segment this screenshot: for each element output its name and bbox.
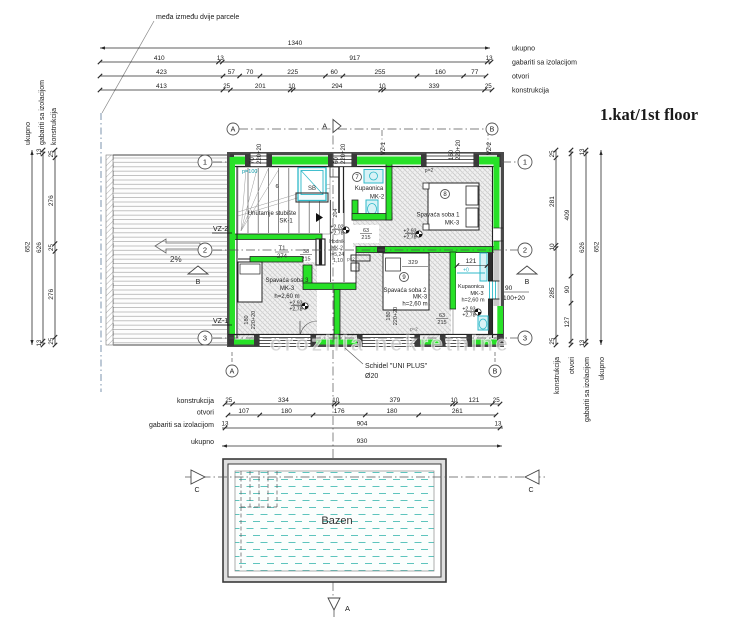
svg-text:274: 274 — [277, 254, 288, 260]
svg-text:215: 215 — [361, 235, 370, 241]
svg-text:90: 90 — [505, 285, 513, 292]
svg-text:930: 930 — [357, 438, 368, 445]
svg-text:13: 13 — [36, 339, 43, 346]
svg-text:konstrukcija: konstrukcija — [51, 108, 58, 145]
svg-text:63: 63 — [439, 313, 445, 319]
svg-text:gabariti sa izolacijom: gabariti sa izolacijom — [512, 60, 577, 67]
svg-text:77: 77 — [471, 69, 479, 76]
svg-text:25: 25 — [223, 83, 230, 90]
svg-text:409: 409 — [564, 209, 571, 220]
svg-text:652: 652 — [25, 241, 32, 252]
svg-text:10: 10 — [549, 243, 556, 250]
svg-text:ukupno: ukupno — [191, 439, 214, 446]
svg-text:3: 3 — [203, 334, 207, 343]
svg-text:gabariti sa izolacijom: gabariti sa izolacijom — [149, 422, 214, 429]
svg-text:127: 127 — [564, 316, 571, 327]
svg-text:13: 13 — [579, 339, 586, 346]
svg-text:konstrukcija: konstrukcija — [554, 357, 561, 394]
svg-text:70: 70 — [246, 69, 254, 76]
svg-text:crozilla nekretnine: crozilla nekretnine — [270, 331, 511, 356]
svg-text:334: 334 — [278, 397, 289, 404]
svg-text:p=100: p=100 — [242, 169, 257, 175]
svg-text:+2,78: +2,78 — [403, 235, 416, 241]
svg-text:6: 6 — [275, 184, 278, 190]
svg-text:107: 107 — [238, 408, 249, 415]
svg-text:Schidel "UNI PLUS": Schidel "UNI PLUS" — [365, 363, 428, 370]
svg-text:60: 60 — [331, 69, 339, 76]
svg-text:13: 13 — [222, 421, 229, 428]
svg-text:otvori: otvori — [569, 357, 576, 375]
svg-text:A: A — [230, 369, 235, 376]
svg-text:2%: 2% — [170, 255, 182, 264]
svg-text:+2,78: +2,78 — [289, 307, 302, 313]
svg-text:VZ-2: VZ-2 — [213, 226, 228, 233]
svg-text:10: 10 — [379, 83, 386, 90]
svg-text:Ø20: Ø20 — [365, 373, 378, 380]
svg-text:MK-3: MK-3 — [470, 291, 483, 297]
svg-text:+0: +0 — [463, 268, 469, 274]
svg-text:C: C — [528, 487, 533, 494]
svg-text:B: B — [490, 127, 495, 134]
svg-text:25: 25 — [48, 150, 55, 157]
svg-text:MK-2: MK-2 — [331, 246, 343, 252]
svg-text:100+20: 100+20 — [503, 295, 525, 302]
svg-text:180: 180 — [281, 408, 292, 415]
svg-text:MK-3: MK-3 — [413, 295, 428, 301]
svg-text:1: 1 — [523, 158, 527, 167]
svg-text:SK-1: SK-1 — [279, 219, 293, 225]
svg-text:10: 10 — [288, 83, 295, 90]
svg-text:25: 25 — [549, 337, 556, 344]
svg-text:90: 90 — [564, 286, 571, 294]
svg-text:13: 13 — [495, 421, 502, 428]
svg-text:+2,78: +2,78 — [462, 313, 475, 319]
svg-text:p=2: p=2 — [347, 257, 355, 262]
svg-text:Kupaonica: Kupaonica — [458, 284, 485, 290]
svg-text:Kupaonica: Kupaonica — [355, 186, 384, 192]
svg-text:Spavaća soba 3: Spavaća soba 3 — [265, 278, 309, 284]
svg-text:25: 25 — [485, 83, 492, 90]
svg-text:gabariti sa izolacijom: gabariti sa izolacijom — [39, 80, 46, 145]
svg-text:160: 160 — [449, 149, 455, 160]
svg-text:A: A — [345, 604, 350, 613]
svg-text:C: C — [194, 487, 199, 494]
svg-text:13: 13 — [36, 148, 43, 155]
svg-text:180: 180 — [244, 315, 250, 324]
svg-text:25: 25 — [225, 397, 232, 404]
svg-text:215: 215 — [301, 257, 310, 263]
svg-text:121: 121 — [466, 258, 477, 265]
svg-text:Bazen: Bazen — [321, 515, 352, 527]
svg-text:220+20: 220+20 — [251, 311, 257, 330]
svg-text:70: 70 — [250, 157, 256, 164]
svg-text:Unutarnje stubište: Unutarnje stubište — [248, 211, 297, 217]
svg-text:917: 917 — [349, 55, 360, 62]
svg-text:410: 410 — [154, 55, 165, 62]
svg-text:h=2,60 m: h=2,60 m — [402, 302, 427, 308]
svg-text:329: 329 — [408, 260, 418, 266]
svg-text:25: 25 — [48, 244, 55, 251]
svg-text:57: 57 — [228, 69, 236, 76]
svg-text:413: 413 — [156, 83, 167, 90]
svg-text:379: 379 — [389, 397, 400, 404]
svg-text:25: 25 — [493, 397, 500, 404]
svg-text:220+20: 220+20 — [456, 139, 462, 160]
svg-text:204: 204 — [333, 208, 339, 217]
svg-text:ukupno: ukupno — [25, 122, 32, 145]
svg-text:63: 63 — [363, 228, 369, 234]
svg-text:261: 261 — [452, 408, 463, 415]
svg-text:121: 121 — [469, 397, 480, 404]
svg-text:ukupno: ukupno — [599, 357, 606, 380]
svg-text:p=2: p=2 — [425, 168, 434, 174]
svg-text:220+20: 220+20 — [341, 143, 347, 164]
svg-text:201: 201 — [255, 83, 266, 90]
svg-text:255: 255 — [375, 69, 386, 76]
svg-text:215: 215 — [437, 320, 446, 326]
svg-text:Spavaća soba 1: Spavaća soba 1 — [416, 213, 460, 219]
svg-text:T1: T1 — [278, 246, 286, 252]
svg-text:13: 13 — [486, 55, 493, 62]
svg-text:423: 423 — [156, 69, 167, 76]
svg-text:2: 2 — [203, 246, 207, 255]
svg-text:2: 2 — [523, 246, 527, 255]
svg-text:220+20: 220+20 — [257, 143, 263, 164]
svg-text:220+20: 220+20 — [393, 307, 399, 326]
svg-text:Spavaća soba 2: Spavaća soba 2 — [383, 288, 427, 294]
svg-text:h=2,60 m: h=2,60 m — [274, 294, 299, 300]
svg-text:1,10: 1,10 — [333, 258, 343, 264]
svg-text:276: 276 — [48, 195, 55, 206]
svg-text:904: 904 — [357, 421, 368, 428]
svg-text:225: 225 — [287, 69, 298, 76]
svg-text:ukupno: ukupno — [512, 46, 535, 53]
svg-text:160: 160 — [435, 69, 446, 76]
svg-text:otvori: otvori — [512, 74, 530, 81]
svg-text:B: B — [525, 279, 530, 286]
svg-text:međa između dvije parcele: međa između dvije parcele — [156, 14, 239, 21]
svg-text:MK-3: MK-3 — [280, 286, 295, 292]
svg-text:13: 13 — [579, 148, 586, 155]
svg-text:180: 180 — [387, 408, 398, 415]
svg-text:1340: 1340 — [288, 40, 303, 47]
svg-text:652: 652 — [594, 241, 601, 252]
svg-text:25: 25 — [549, 150, 556, 157]
svg-text:10: 10 — [451, 397, 458, 404]
svg-text:konstrukcija: konstrukcija — [177, 398, 214, 405]
svg-text:A: A — [322, 124, 327, 131]
svg-text:A: A — [231, 127, 236, 134]
svg-text:SB: SB — [308, 186, 316, 192]
svg-text:10: 10 — [332, 397, 339, 404]
svg-text:285: 285 — [549, 287, 556, 298]
svg-text:+2,78: +2,78 — [330, 231, 343, 237]
svg-text:176: 176 — [334, 408, 345, 415]
svg-text:13: 13 — [217, 55, 224, 62]
svg-text:180: 180 — [386, 311, 392, 320]
svg-text:h=2,60 m: h=2,60 m — [461, 298, 485, 304]
svg-text:626: 626 — [579, 242, 586, 253]
svg-text:gabariti sa izolacijom: gabariti sa izolacijom — [584, 357, 591, 422]
svg-text:VZ-1: VZ-1 — [213, 318, 228, 325]
svg-text:294: 294 — [331, 83, 342, 90]
svg-text:MK-3: MK-3 — [445, 221, 460, 227]
svg-text:Hodnik: Hodnik — [329, 239, 345, 245]
svg-text:339: 339 — [429, 83, 440, 90]
svg-text:B: B — [493, 369, 498, 376]
svg-text:25: 25 — [48, 337, 55, 344]
svg-text:1: 1 — [203, 158, 207, 167]
svg-text:MK-2: MK-2 — [370, 195, 385, 201]
svg-text:626: 626 — [36, 242, 43, 253]
svg-text:1.kat/1st floor: 1.kat/1st floor — [600, 105, 698, 124]
svg-text:otvori: otvori — [197, 410, 215, 417]
svg-text:B: B — [196, 279, 201, 286]
svg-text:3: 3 — [523, 334, 527, 343]
svg-text:276: 276 — [48, 289, 55, 300]
svg-text:60: 60 — [334, 157, 340, 164]
svg-text:konstrukcija: konstrukcija — [512, 88, 549, 95]
svg-text:281: 281 — [549, 196, 556, 207]
